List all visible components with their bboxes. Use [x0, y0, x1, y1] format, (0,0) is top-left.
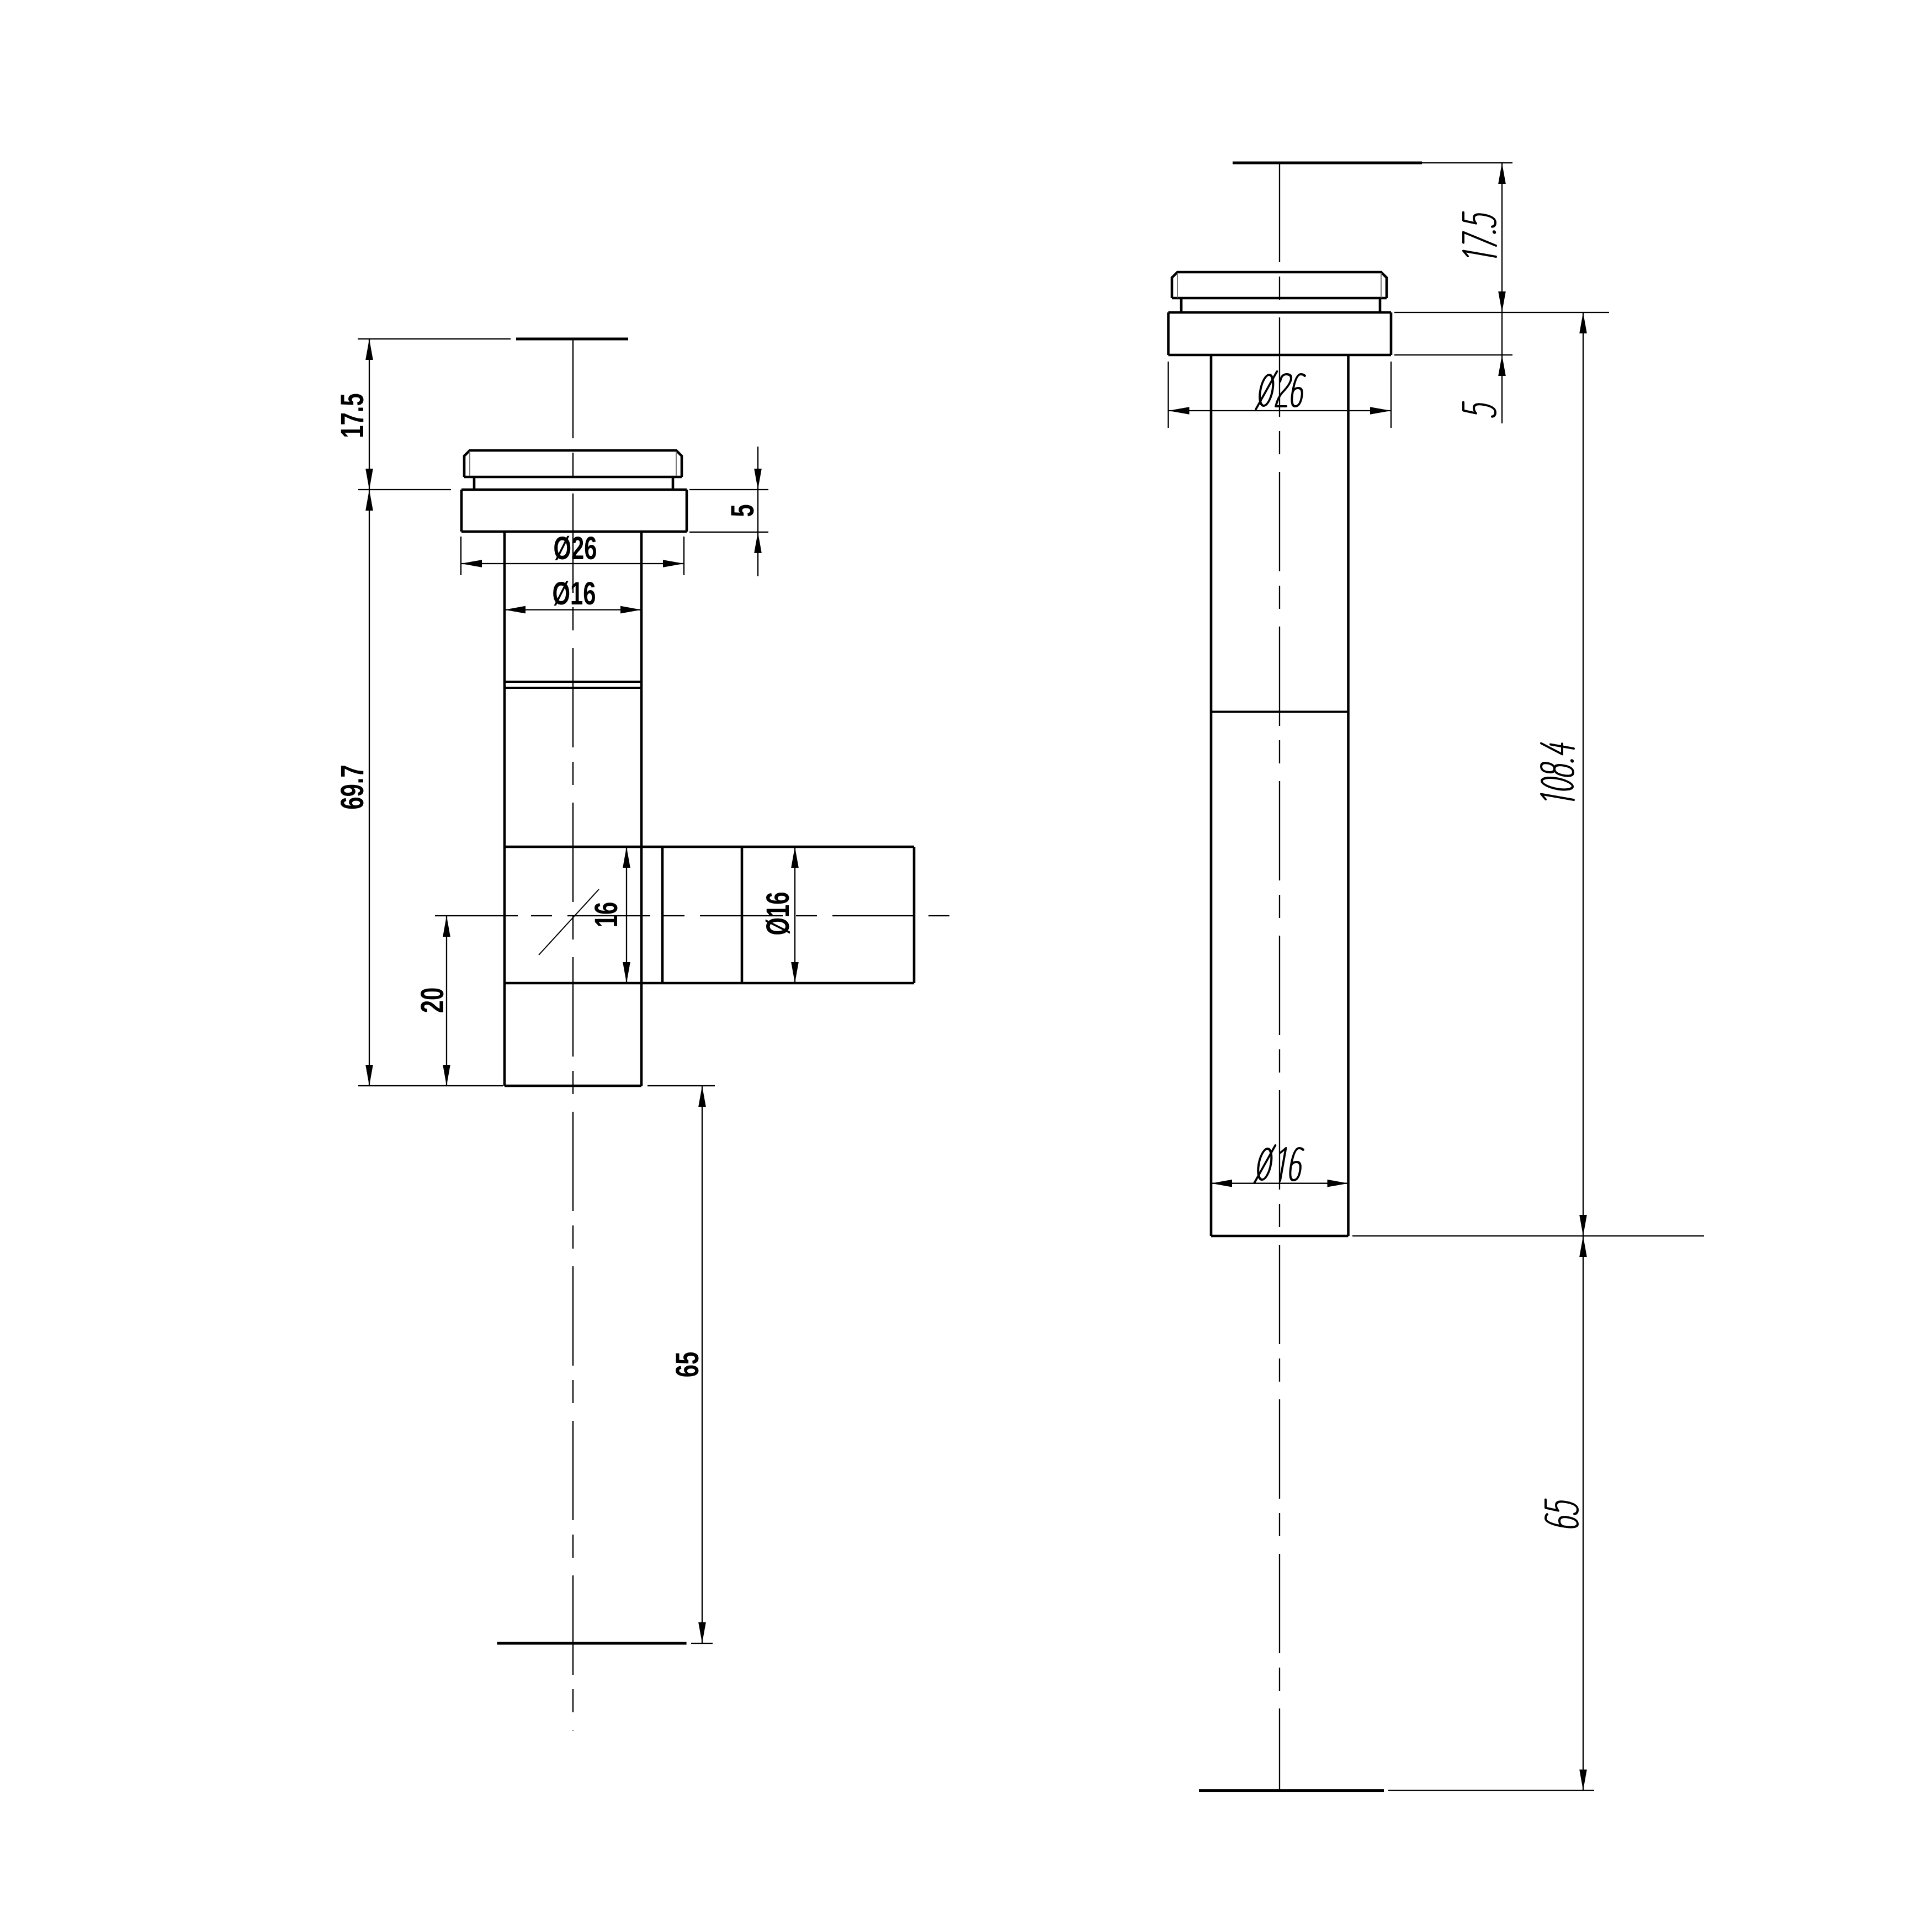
- svg-text:65: 65: [669, 1352, 705, 1377]
- svg-text:16: 16: [588, 902, 624, 927]
- svg-text:Ø16: Ø16: [553, 575, 596, 611]
- svg-text:5: 5: [724, 504, 760, 517]
- svg-text:17.5: 17.5: [334, 393, 370, 438]
- svg-text:69.7: 69.7: [334, 765, 370, 809]
- svg-text:Ø16: Ø16: [760, 892, 795, 936]
- svg-text:Ø26: Ø26: [554, 530, 597, 566]
- svg-text:20: 20: [414, 988, 450, 1013]
